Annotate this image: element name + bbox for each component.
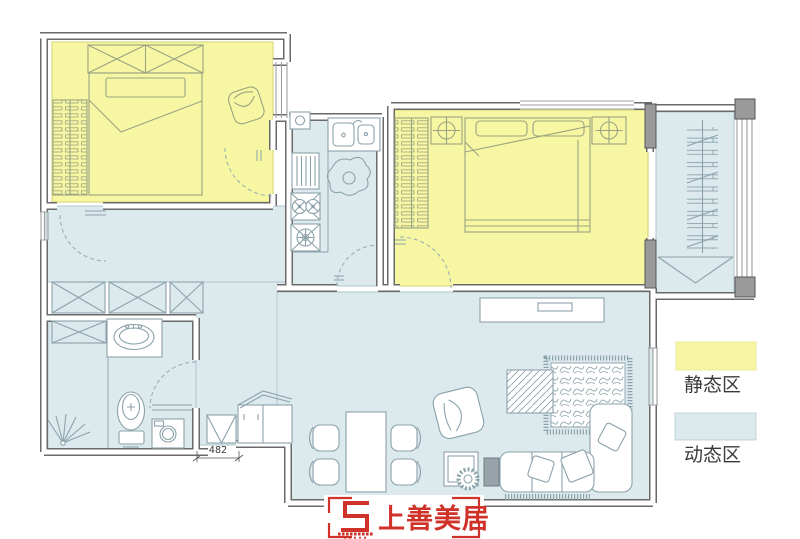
master-bedroom-window — [520, 101, 634, 109]
floor-plan-page: 482 静态区 动态区 上善美居 — [0, 0, 800, 539]
legend: 静态区 动态区 — [675, 342, 756, 466]
zone-hallway — [46, 206, 287, 282]
floor-speaker-icon — [484, 458, 499, 486]
bath-cabinet-icon — [52, 321, 106, 343]
gas-meter-icon — [290, 112, 310, 129]
dining-chair-icon — [310, 425, 340, 451]
floor-plan: 482 静态区 动态区 上善美居 — [0, 0, 800, 539]
storage-cabinets-icon — [52, 282, 203, 313]
balcony-window — [737, 112, 752, 294]
toilet-icon — [118, 392, 145, 447]
sink-icon — [328, 118, 380, 151]
logo-text: 上善美居 — [378, 503, 490, 534]
legend-label-static: 静态区 — [684, 374, 741, 396]
dresser-icon — [53, 100, 87, 195]
wardrobe-icon — [395, 118, 428, 228]
logo: 上善美居 — [324, 495, 490, 539]
washing-machine-icon — [152, 419, 184, 448]
dimension-label: 482 — [209, 445, 227, 456]
bedroom-1-window — [276, 62, 287, 118]
tv-cabinet-icon — [480, 298, 604, 322]
wok-burner-icon — [291, 224, 320, 251]
dish-rack-icon — [292, 153, 319, 189]
legend-swatch-dynamic — [675, 413, 756, 440]
entry-door-icon — [207, 415, 236, 443]
stove-icon — [291, 193, 320, 220]
balcony-pier-bottom — [645, 240, 656, 288]
dining-chair-icon — [391, 425, 421, 451]
drying-rack-icon — [687, 120, 718, 253]
legend-swatch-static — [676, 342, 756, 370]
balcony-column-bottom — [735, 277, 755, 297]
dining-chair-icon — [310, 459, 340, 485]
dining-table-icon — [346, 412, 386, 492]
legend-label-dynamic: 动态区 — [684, 444, 741, 466]
washbasin-icon — [107, 319, 162, 357]
living-room-window — [648, 348, 658, 405]
dining-chair-icon — [391, 459, 421, 485]
balcony-column-top — [735, 99, 755, 119]
balcony-pier-top — [645, 104, 656, 148]
plant-icon — [459, 470, 478, 489]
wall-art-icon — [507, 370, 553, 413]
